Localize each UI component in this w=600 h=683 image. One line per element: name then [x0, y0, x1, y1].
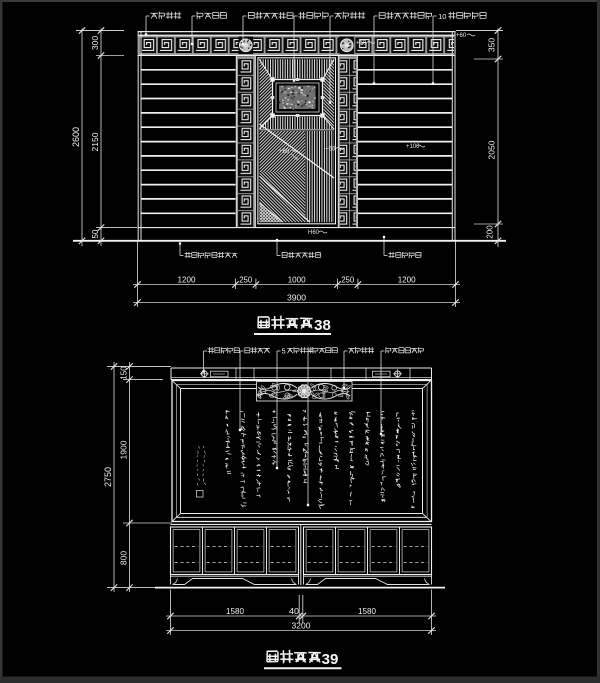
- svg-text:2750: 2750: [103, 467, 113, 487]
- svg-text:250: 250: [239, 274, 252, 284]
- svg-text:2150: 2150: [90, 132, 100, 151]
- svg-text:2050: 2050: [487, 140, 497, 159]
- svg-text:5: 5: [282, 347, 286, 356]
- svg-text:3200: 3200: [292, 620, 311, 630]
- svg-text:1200: 1200: [398, 274, 416, 284]
- svg-text:50: 50: [91, 229, 100, 238]
- svg-text:3900: 3900: [287, 292, 306, 302]
- svg-text:350: 350: [487, 38, 497, 52]
- svg-text:38: 38: [314, 317, 331, 334]
- svg-text:39: 39: [322, 651, 339, 668]
- svg-text:150: 150: [120, 366, 129, 380]
- svg-text:300: 300: [90, 36, 100, 50]
- svg-text:+60: +60: [325, 147, 336, 153]
- svg-text:40: 40: [289, 606, 299, 616]
- svg-text:250: 250: [341, 274, 354, 284]
- svg-text:1580: 1580: [226, 606, 244, 616]
- svg-text:1200: 1200: [178, 274, 196, 284]
- svg-text:+60: +60: [456, 33, 467, 39]
- svg-text:1000: 1000: [288, 274, 306, 284]
- svg-text:+60: +60: [356, 41, 367, 47]
- svg-text:H60: H60: [308, 230, 320, 236]
- svg-text:1580: 1580: [358, 606, 376, 616]
- svg-text:2600: 2600: [71, 127, 81, 147]
- svg-text:200: 200: [486, 225, 495, 239]
- svg-text:+60: +60: [279, 149, 290, 155]
- svg-text:1900: 1900: [119, 440, 129, 459]
- svg-text:10: 10: [438, 12, 446, 21]
- svg-text:800: 800: [119, 551, 129, 565]
